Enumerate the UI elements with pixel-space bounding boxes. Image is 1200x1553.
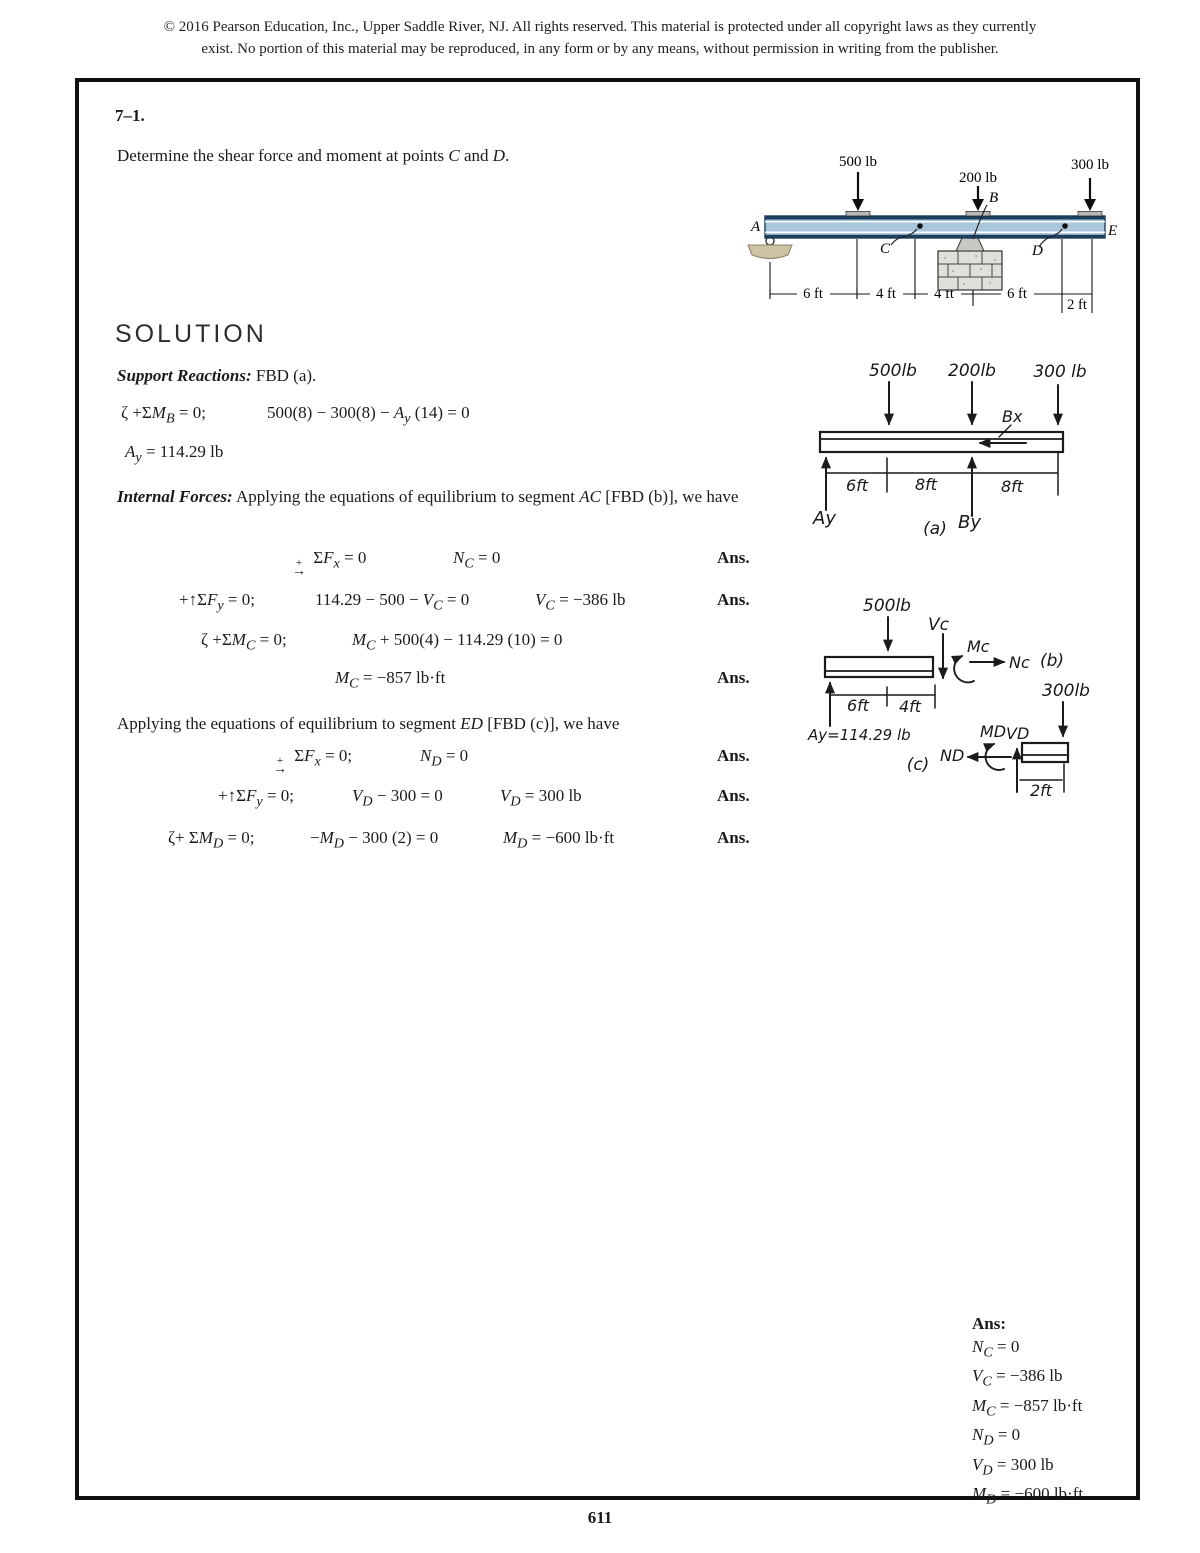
eq-mb-lhs: ζ +ΣMB = 0;	[121, 403, 206, 422]
solution-heading: SOLUTION	[115, 320, 267, 349]
ans-label: Ans.	[717, 828, 750, 848]
problem-statement: Determine the shear force and moment at …	[117, 146, 509, 166]
eq-ed-row-1: +→ ΣFx = 0; ND = 0 Ans.	[79, 746, 839, 770]
answer-vc: VC = −386 lb	[972, 1364, 1083, 1393]
eq-ac1-mid: NC = 0	[453, 548, 500, 572]
eq-ac4-result: MC = −857 lb·ft	[335, 668, 445, 692]
answer-md: MD = −600 lb·ft	[972, 1482, 1083, 1511]
problem-number: 7–1.	[115, 106, 145, 126]
eq-ed2-lhs: +↑ΣFy = 0;	[218, 786, 294, 810]
eq-ed-row-2: +↑ΣFy = 0; VD − 300 = 0 VD = 300 lb Ans.	[79, 786, 839, 810]
eq-ac3-lhs: ζ +ΣMC = 0;	[201, 630, 287, 654]
answers-heading: Ans:	[972, 1312, 1083, 1335]
fbd-b-tag: (b)	[1040, 651, 1064, 671]
support-reactions-line: Support Reactions: FBD (a).	[117, 366, 316, 386]
eq-ed2-mid: VD − 300 = 0	[352, 786, 443, 810]
load-arrowheads	[852, 199, 1096, 211]
beam	[765, 216, 1105, 238]
solution-frame: 7–1. Determine the shear force and momen…	[75, 78, 1140, 1500]
fbd-a-load-300: 300 lb	[1033, 362, 1086, 382]
fbd-c-tag: (c)	[907, 755, 930, 775]
fbd-sketches-svg: 500lb 200lb 300 lb Bx Ay By 6ft 8ft 8ft …	[780, 340, 1160, 820]
fbd-a-ay-label: Ay	[812, 508, 836, 529]
eq-ac2-lhs: +↑ΣFy = 0;	[179, 590, 255, 614]
eq-ac1-lhs: +→ ΣFx = 0	[292, 548, 366, 577]
eq-ed1-lhs: +→ ΣFx = 0;	[273, 746, 352, 775]
answer-nd: ND = 0	[972, 1423, 1083, 1452]
dim-6ft-2: 6 ft	[1007, 286, 1027, 302]
dim-6ft-1: 6 ft	[803, 286, 823, 302]
moment-b-equation: ζ +ΣMB = 0; 500(8) − 300(8) − Ay (14) = …	[121, 403, 206, 427]
internal-forces-text: Applying the equations of equilibrium to…	[233, 487, 739, 506]
ay-result: Ay = 114.29 lb	[125, 442, 223, 466]
fbd-b-load-500: 500lb	[863, 596, 911, 616]
fbd-c	[968, 702, 1068, 792]
ans-label: Ans.	[717, 786, 750, 806]
eq-ed2-result: VD = 300 lb	[500, 786, 582, 810]
ans-label: Ans.	[717, 668, 750, 688]
ans-label: Ans.	[717, 548, 750, 568]
eq-ed-row-3: ζ+ ΣMD = 0; −MD − 300 (2) = 0 MD = −600 …	[79, 828, 839, 852]
fbd-b-nc-label: Nc	[1009, 653, 1030, 672]
hand-drawn-fbds: 500lb 200lb 300 lb Bx Ay By 6ft 8ft 8ft …	[780, 340, 1160, 820]
eq-ac-row-1: +→ ΣFx = 0 NC = 0 Ans.	[79, 548, 839, 572]
fbd-c-dim-2ft: 2ft	[1030, 781, 1053, 800]
internal-forces-paragraph: Internal Forces: Applying the equations …	[117, 485, 767, 509]
ans-label: Ans.	[717, 746, 750, 766]
point-d-dot	[1062, 223, 1068, 229]
copyright-header: © 2016 Pearson Education, Inc., Upper Sa…	[0, 16, 1200, 60]
brick-pier	[938, 238, 1002, 290]
point-label-b: B	[989, 190, 998, 206]
fbd-b-ay-value: Ay=114.29 lb	[807, 726, 911, 744]
applying-ed-paragraph: Applying the equations of equilibrium to…	[117, 714, 797, 734]
textbook-solution-page: { "header": { "line1": "© 2016 Pearson E…	[0, 0, 1200, 1553]
fbd-a-load-200: 200lb	[948, 361, 996, 381]
point-label-c: C	[880, 241, 891, 257]
fbd-c-vd-label: VD	[1006, 724, 1029, 743]
eq-ac3-mid: MC + 500(4) − 114.29 (10) = 0	[352, 630, 562, 654]
answer-nc: NC = 0	[972, 1335, 1083, 1364]
load-label-300: 300 lb	[1071, 157, 1109, 173]
point-label-d: D	[1031, 243, 1043, 259]
copyright-line-2: exist. No portion of this material may b…	[0, 38, 1200, 60]
fbd-b-dim-4ft: 4ft	[899, 697, 922, 716]
eq-mb-rhs: 500(8) − 300(8) − Ay (14) = 0	[267, 403, 470, 427]
eq-ac2-result: VC = −386 lb	[535, 590, 626, 614]
answer-vd: VD = 300 lb	[972, 1453, 1083, 1482]
eq-ed3-lhs: ζ+ ΣMD = 0;	[168, 828, 255, 852]
fbd-a-dim-6ft: 6ft	[846, 476, 869, 495]
fbd-a-by-label: By	[958, 512, 981, 533]
fbd-a-bx-label: Bx	[1002, 407, 1023, 426]
point-label-a: A	[750, 219, 761, 235]
ans-label: Ans.	[717, 590, 750, 610]
answers-summary: Ans: NC = 0 VC = −386 lb MC = −857 lb·ft…	[972, 1312, 1083, 1511]
eq-ac-row-2: +↑ΣFy = 0; 114.29 − 500 − VC = 0 VC = −3…	[79, 590, 839, 614]
support-reactions-text: FBD (a).	[252, 366, 317, 385]
eq-ac-row-3: ζ +ΣMC = 0; MC + 500(4) − 114.29 (10) = …	[79, 630, 839, 654]
point-label-e: E	[1107, 223, 1117, 239]
pin-support-a	[748, 237, 792, 259]
load-label-200: 200 lb	[959, 170, 997, 186]
page-number: 611	[0, 1508, 1200, 1528]
fbd-c-md-label: MD	[980, 722, 1006, 741]
fbd-b-dim-6ft: 6ft	[847, 696, 870, 715]
point-c-dot	[917, 223, 923, 229]
fbd-a-dim-8ft-1: 8ft	[915, 475, 938, 494]
bearing-pad	[956, 238, 984, 251]
fbd-a	[820, 382, 1063, 516]
fbd-a-tag: (a)	[923, 519, 947, 539]
fbd-c-nd-label: ND	[940, 746, 964, 765]
eq-ed3-mid: −MD − 300 (2) = 0	[310, 828, 438, 852]
eq-ed3-result: MD = −600 lb·ft	[503, 828, 614, 852]
fbd-c-load-300: 300lb	[1042, 681, 1090, 701]
eq-ac-row-4: MC = −857 lb·ft Ans.	[79, 668, 839, 692]
copyright-line-1: © 2016 Pearson Education, Inc., Upper Sa…	[0, 16, 1200, 38]
load-label-500: 500 lb	[839, 154, 877, 170]
dim-4ft-1: 4 ft	[876, 286, 896, 302]
fbd-a-load-500: 500lb	[869, 361, 917, 381]
eq-ac2-mid: 114.29 − 500 − VC = 0	[315, 590, 469, 614]
internal-forces-label: Internal Forces:	[117, 487, 233, 506]
fbd-a-dim-8ft-2: 8ft	[1001, 477, 1024, 496]
fbd-b-mc-label: Mc	[967, 637, 990, 656]
dim-2ft: 2 ft	[1067, 297, 1087, 313]
support-reactions-label: Support Reactions:	[117, 366, 252, 385]
answer-mc: MC = −857 lb·ft	[972, 1394, 1083, 1423]
eq-ed1-mid: ND = 0	[420, 746, 468, 770]
fbd-b-vc-label: Vc	[928, 615, 950, 635]
